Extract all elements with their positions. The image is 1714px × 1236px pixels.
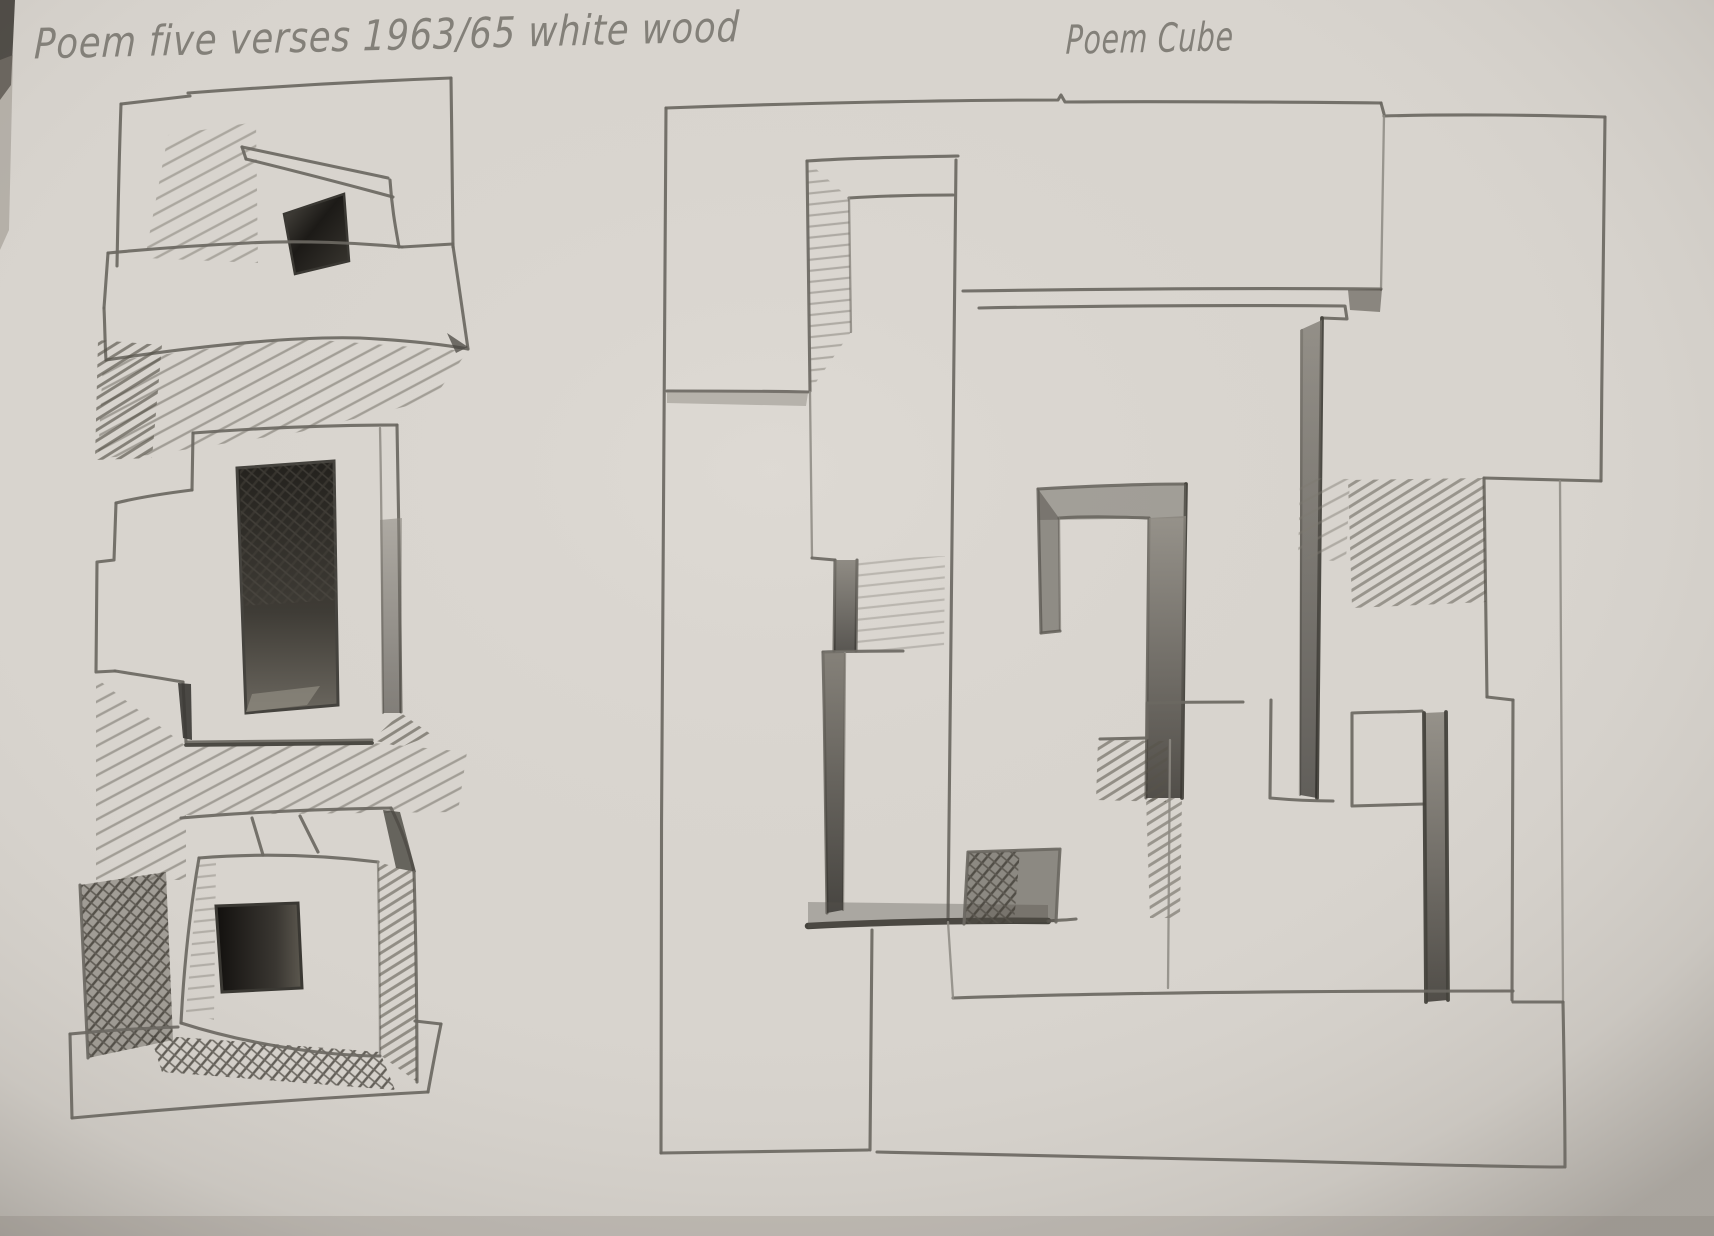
right-sketch-caption: Poem Cube [1065,14,1234,64]
portal-hatch-left [1298,478,1350,562]
hatch-band-2-right [186,743,467,815]
u-band-top-shading [1038,484,1186,520]
right-edge-shading [380,518,402,713]
right-dark-band [1424,712,1448,1002]
u-band-tail-shading [1146,798,1182,918]
hatch-band-1-dark [95,340,162,460]
zig-band-light [857,556,945,650]
zig-band-upper [834,560,857,651]
sketchbook-photo: Poem five verses 1963/65 white wood Poem… [0,0,1714,1236]
dark-square-opening [216,903,302,992]
portal-hatch [1348,478,1486,608]
l-hatch-block [1096,740,1168,802]
opening-scribble [240,461,337,606]
corner-dark-blob [1348,289,1382,312]
trapezoid-scribble [964,850,1020,924]
bottom-edge-shade [0,1216,1714,1236]
block5-right-shading [378,862,417,1082]
